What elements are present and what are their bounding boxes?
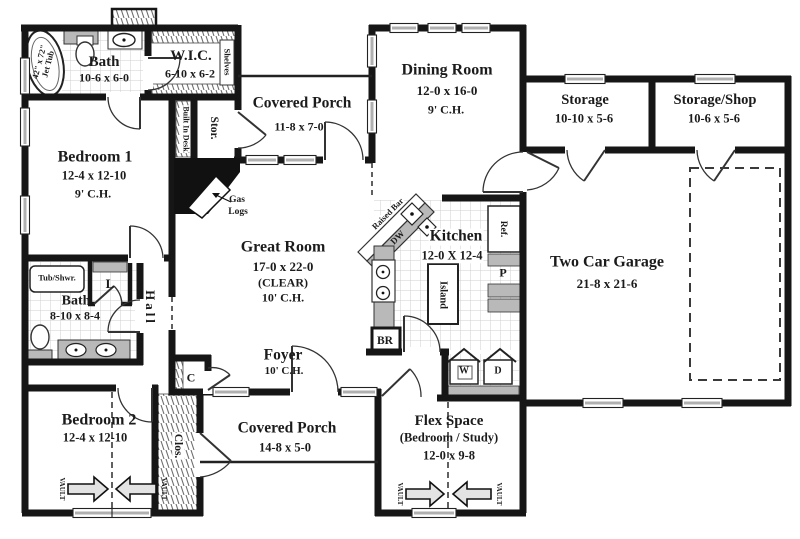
vault-label: VAULT xyxy=(395,483,403,506)
rear-porch-name: Covered Porch xyxy=(253,96,352,113)
bedroom1-ceiling: 9' C.H. xyxy=(75,188,111,201)
great-room-dims: 17-0 x 22-0 xyxy=(253,260,314,274)
sink-icon xyxy=(108,30,142,49)
wic-dims: 6-10 x 6-2 xyxy=(165,68,215,81)
floor-plan: Bath 10-6 x 6-0 42" x 72" Jet Tub W.I.C.… xyxy=(0,0,800,539)
great-room-note: (CLEAR) xyxy=(258,277,308,290)
vault-label: VAULT xyxy=(494,483,502,506)
coat-closet-label: C xyxy=(187,372,196,385)
storage-dims: 10-10 x 5-6 xyxy=(555,112,613,126)
vault-label: VAULT xyxy=(159,478,167,501)
vault-arrows xyxy=(68,477,491,506)
window xyxy=(284,156,316,165)
hall-name: Hall xyxy=(143,290,157,326)
window xyxy=(682,399,722,408)
tub-shower-label: Tub/Shwr. xyxy=(38,273,75,282)
bedroom1-name: Bedroom 1 xyxy=(58,148,133,165)
window xyxy=(341,388,377,397)
foyer-ceiling: 10' C.H. xyxy=(265,366,304,378)
garage-dims: 21-8 x 21-6 xyxy=(577,277,638,291)
window xyxy=(462,24,490,33)
window xyxy=(246,156,278,165)
washer-label: W xyxy=(459,367,469,378)
bedroom1-dims: 12-4 x 12-10 xyxy=(62,169,127,183)
gas-logs-line1: Gas xyxy=(229,195,245,205)
pantry-label: P xyxy=(499,267,506,280)
vault-arrow-icon xyxy=(116,477,156,501)
dryer-label: D xyxy=(494,367,501,378)
built-in-desk-label: Built In Desk xyxy=(181,105,190,152)
stor-closet-label: Stor. xyxy=(208,117,220,140)
range-icon xyxy=(372,260,395,302)
bath2-dims: 8-10 x 8-4 xyxy=(50,310,100,323)
bath1-dims: 10-6 x 6-0 xyxy=(79,72,129,85)
bath1-name: Bath xyxy=(89,54,120,70)
shelves-label: Shelves xyxy=(222,48,231,77)
bedroom2-dims: 12-4 x 12-10 xyxy=(63,431,128,445)
garage-name: Two Car Garage xyxy=(550,253,664,270)
closet-label: Clos. xyxy=(172,433,184,460)
window xyxy=(21,58,30,94)
window xyxy=(565,75,605,84)
bath2-name: Bath xyxy=(62,293,91,308)
window xyxy=(368,35,377,67)
door-swing xyxy=(325,122,363,160)
window xyxy=(412,509,456,518)
window xyxy=(21,196,30,234)
island-label: Island xyxy=(437,281,448,309)
window xyxy=(73,509,151,518)
garage-dashed-outline xyxy=(690,168,780,380)
vault-label: VAULT xyxy=(57,478,65,501)
dining-dims: 12-0 x 16-0 xyxy=(417,84,478,98)
flex-dims: 12-0 x 9-8 xyxy=(423,449,475,463)
double-vanity-icon xyxy=(58,340,130,360)
window xyxy=(428,24,456,33)
window xyxy=(695,75,735,84)
vault-arrow-icon xyxy=(68,477,108,501)
foyer-name: Foyer xyxy=(264,348,303,365)
great-room-name: Great Room xyxy=(241,238,326,255)
front-porch-dims: 14-8 x 5-0 xyxy=(259,441,311,455)
kitchen-dims: 12-0 X 12-4 xyxy=(420,249,483,263)
rear-porch-dims: 11-8 x 7-0 xyxy=(274,121,323,134)
window xyxy=(583,399,623,408)
window xyxy=(390,24,418,33)
flex-sub: (Bedroom / Study) xyxy=(400,431,498,445)
broom-closet-label: BR xyxy=(377,335,393,347)
refrigerator-label: Ref. xyxy=(498,221,508,238)
window xyxy=(213,388,249,397)
door-swing xyxy=(527,152,559,190)
storage-shop-name: Storage/Shop xyxy=(674,93,757,109)
linen-label: L xyxy=(106,277,115,291)
great-room-ceiling: 10' C.H. xyxy=(262,292,304,305)
flex-name: Flex Space xyxy=(415,413,484,429)
front-porch-name: Covered Porch xyxy=(238,421,337,438)
vault-arrow-icon xyxy=(453,482,491,506)
dining-ceiling: 9' C.H. xyxy=(428,104,464,117)
linen-shelf-icon xyxy=(93,262,127,272)
window xyxy=(368,100,377,133)
wic-name: W.I.C. xyxy=(170,48,212,64)
dining-name: Dining Room xyxy=(401,61,492,78)
kitchen-name: Kitchen xyxy=(429,229,484,246)
door-swing xyxy=(483,152,523,192)
door-swing xyxy=(382,369,421,397)
window xyxy=(21,108,30,146)
vault-arrow-icon xyxy=(406,482,444,506)
bedroom2-name: Bedroom 2 xyxy=(62,411,137,428)
gas-logs-line2: Logs xyxy=(228,207,248,217)
storage-name: Storage xyxy=(561,93,609,109)
storage-shop-dims: 10-6 x 5-6 xyxy=(688,112,740,126)
